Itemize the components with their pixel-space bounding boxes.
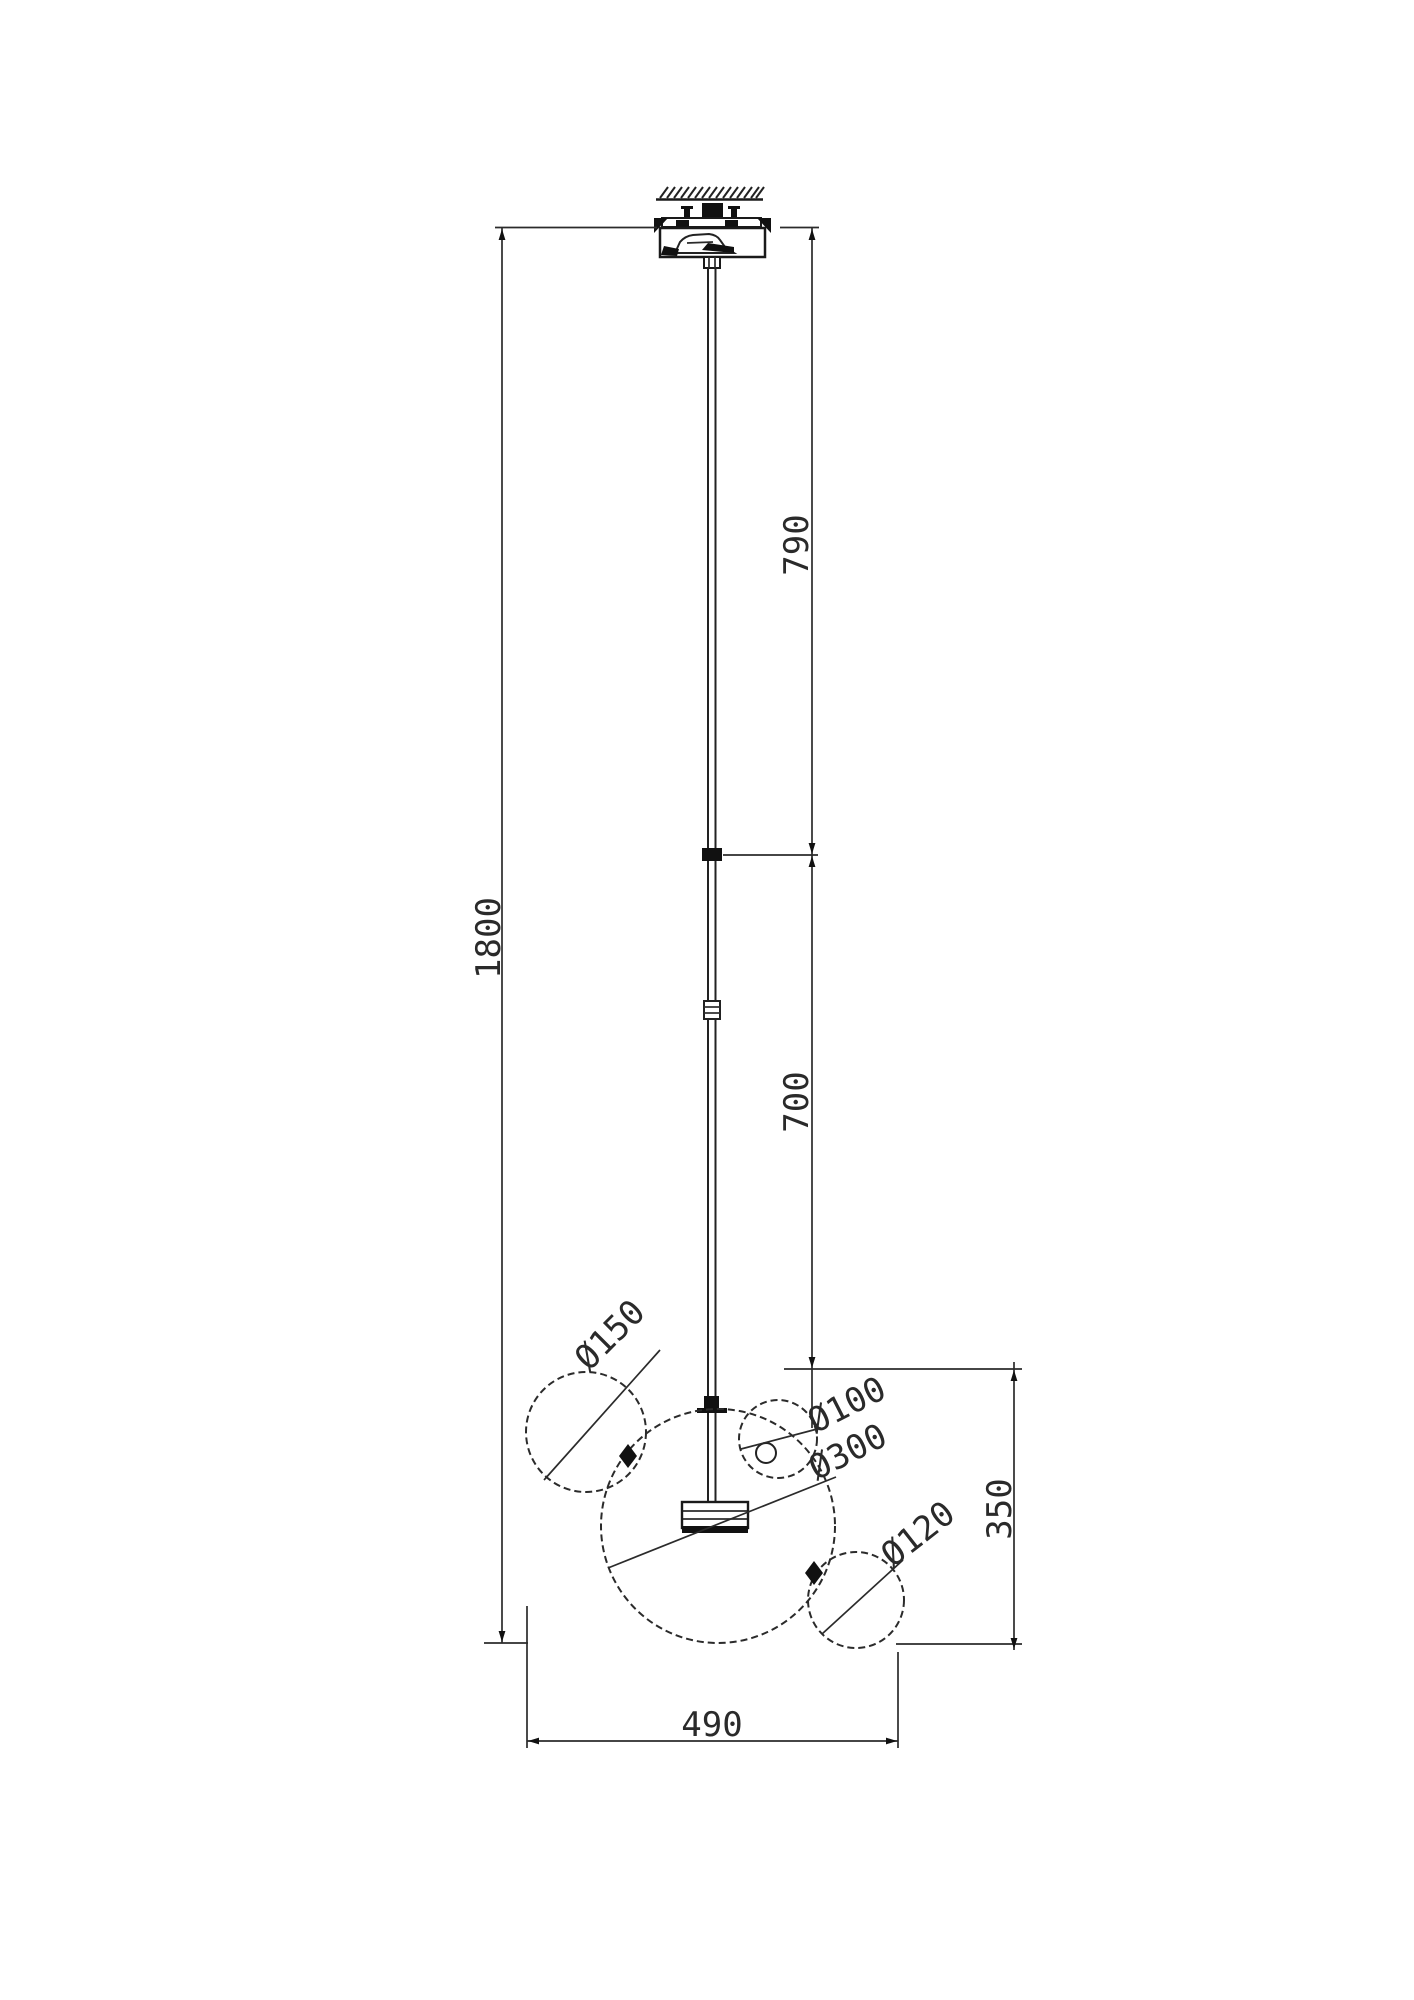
dimension-labels: 1800 790 700 350 490 [469,514,1020,1745]
ceiling-hatching-icon [656,187,764,200]
upper-rod-label: 790 [777,514,817,575]
rod-end-connector [704,1396,719,1408]
clip-diamond-left [619,1444,637,1468]
shade-height-label: 350 [980,1478,1020,1539]
rod-coupler [702,848,722,861]
suspension-rod [697,268,727,1503]
rod-sleeve-joint [704,1001,720,1019]
drawing-sheet: 1800 790 700 350 490 Ø150 Ø100 Ø300 Ø120 [0,0,1414,2000]
canopy [660,228,765,268]
diameter-150-label: Ø150 [567,1292,653,1378]
shade-width-label: 490 [681,1705,742,1745]
inner-ball [756,1443,776,1463]
diameter-labels: Ø150 Ø100 Ø300 Ø120 [567,1292,963,1575]
pendant-lamp-drawing: 1800 790 700 350 490 Ø150 Ø100 Ø300 Ø120 [0,0,1414,2000]
lower-rod-label: 700 [777,1071,817,1132]
overall-height-label: 1800 [469,897,509,979]
lamp-holder [682,1502,748,1533]
